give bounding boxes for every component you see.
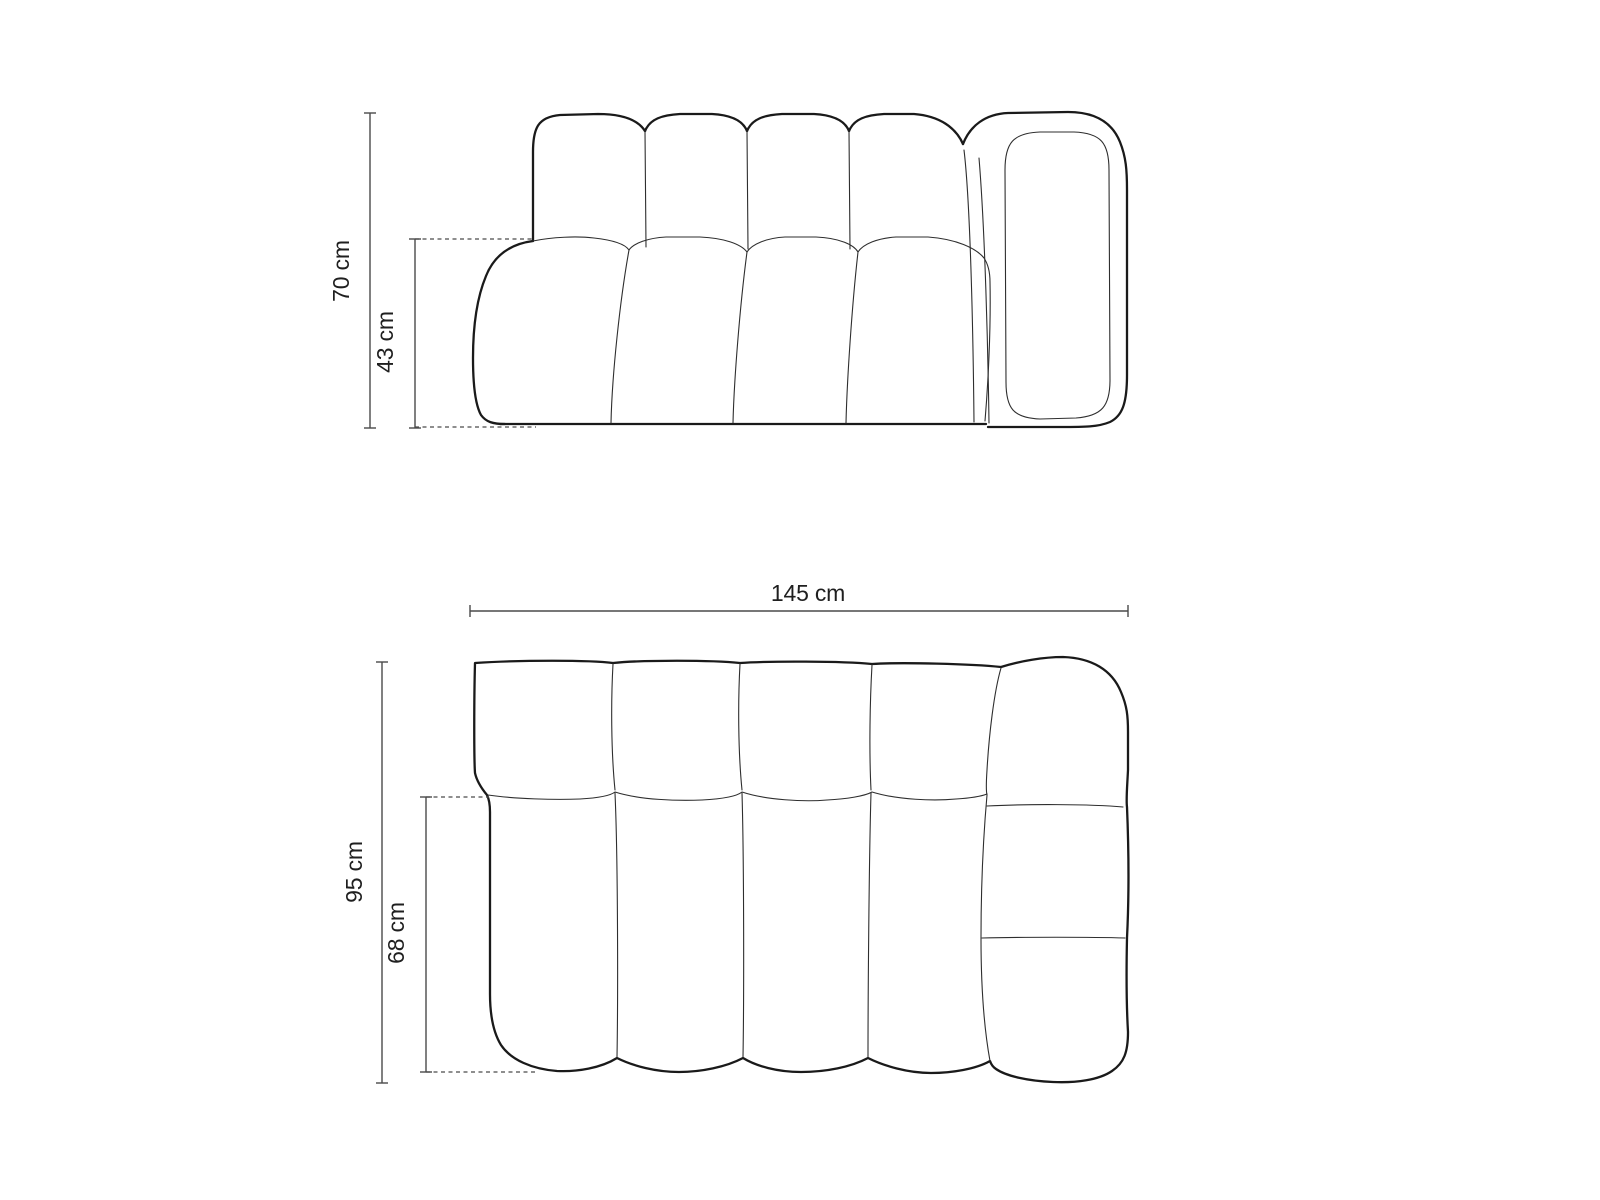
- plan-extension-lines: [426, 797, 537, 1072]
- elevation-outlines: [473, 112, 1127, 427]
- plan-view: 145 cm 95 cm 68 cm: [341, 580, 1129, 1083]
- elevation-dimensions: [364, 113, 421, 428]
- plan-back-seam-2: [739, 664, 742, 790]
- plan-outer-outline: [474, 657, 1128, 1082]
- seat-cushion-top-3: [747, 237, 858, 252]
- dimension-label-seat-depth: 68 cm: [383, 902, 409, 964]
- back-seam-3: [849, 131, 850, 249]
- plan-seams: [488, 664, 1125, 1061]
- plan-back-seam-1: [612, 664, 615, 790]
- seat-cushion-top-1: [533, 237, 629, 250]
- dimension-label-total-width: 145 cm: [771, 580, 845, 606]
- seat-left-outline: [473, 241, 533, 424]
- plan-dimensions: [376, 605, 1128, 1083]
- seat-seam-1: [611, 250, 629, 423]
- back-cushion-4: [849, 114, 963, 144]
- back-cushion-2: [645, 114, 747, 131]
- seat-cushion-top-4: [858, 237, 990, 421]
- elevation-view: 70 cm 43 cm: [328, 112, 1127, 428]
- elevation-seams: [533, 131, 1110, 423]
- plan-seat-seam-3: [868, 793, 871, 1057]
- armrest-roll-outer-seam: [964, 150, 974, 422]
- sofa-dimension-diagram: 70 cm 43 cm: [0, 0, 1600, 1200]
- back-cushion-3: [747, 114, 849, 131]
- dimension-label-total-height: 70 cm: [328, 240, 354, 302]
- back-seam-1: [645, 131, 646, 247]
- seat-seam-3: [846, 252, 858, 423]
- armrest-inner-panel: [1005, 132, 1110, 419]
- drawing-canvas: 70 cm 43 cm: [0, 0, 1600, 1200]
- plan-seat-seam-1: [615, 793, 618, 1057]
- plan-seat-seam-2: [742, 793, 744, 1057]
- seat-cushion-top-2: [629, 237, 747, 252]
- back-seam-2: [747, 131, 748, 249]
- dimension-label-seat-height: 43 cm: [372, 311, 398, 373]
- seat-seam-2: [733, 252, 747, 423]
- dimension-label-total-depth: 95 cm: [341, 841, 367, 903]
- plan-armrest-inner-edge: [981, 668, 1001, 1061]
- back-cushion-1: [533, 114, 645, 241]
- plan-backrest-front-edge: [488, 792, 987, 801]
- plan-back-seam-3: [870, 665, 872, 790]
- plan-outlines: [474, 657, 1128, 1082]
- plan-armrest-seam-1: [987, 805, 1123, 807]
- plan-armrest-seam-2: [982, 937, 1125, 938]
